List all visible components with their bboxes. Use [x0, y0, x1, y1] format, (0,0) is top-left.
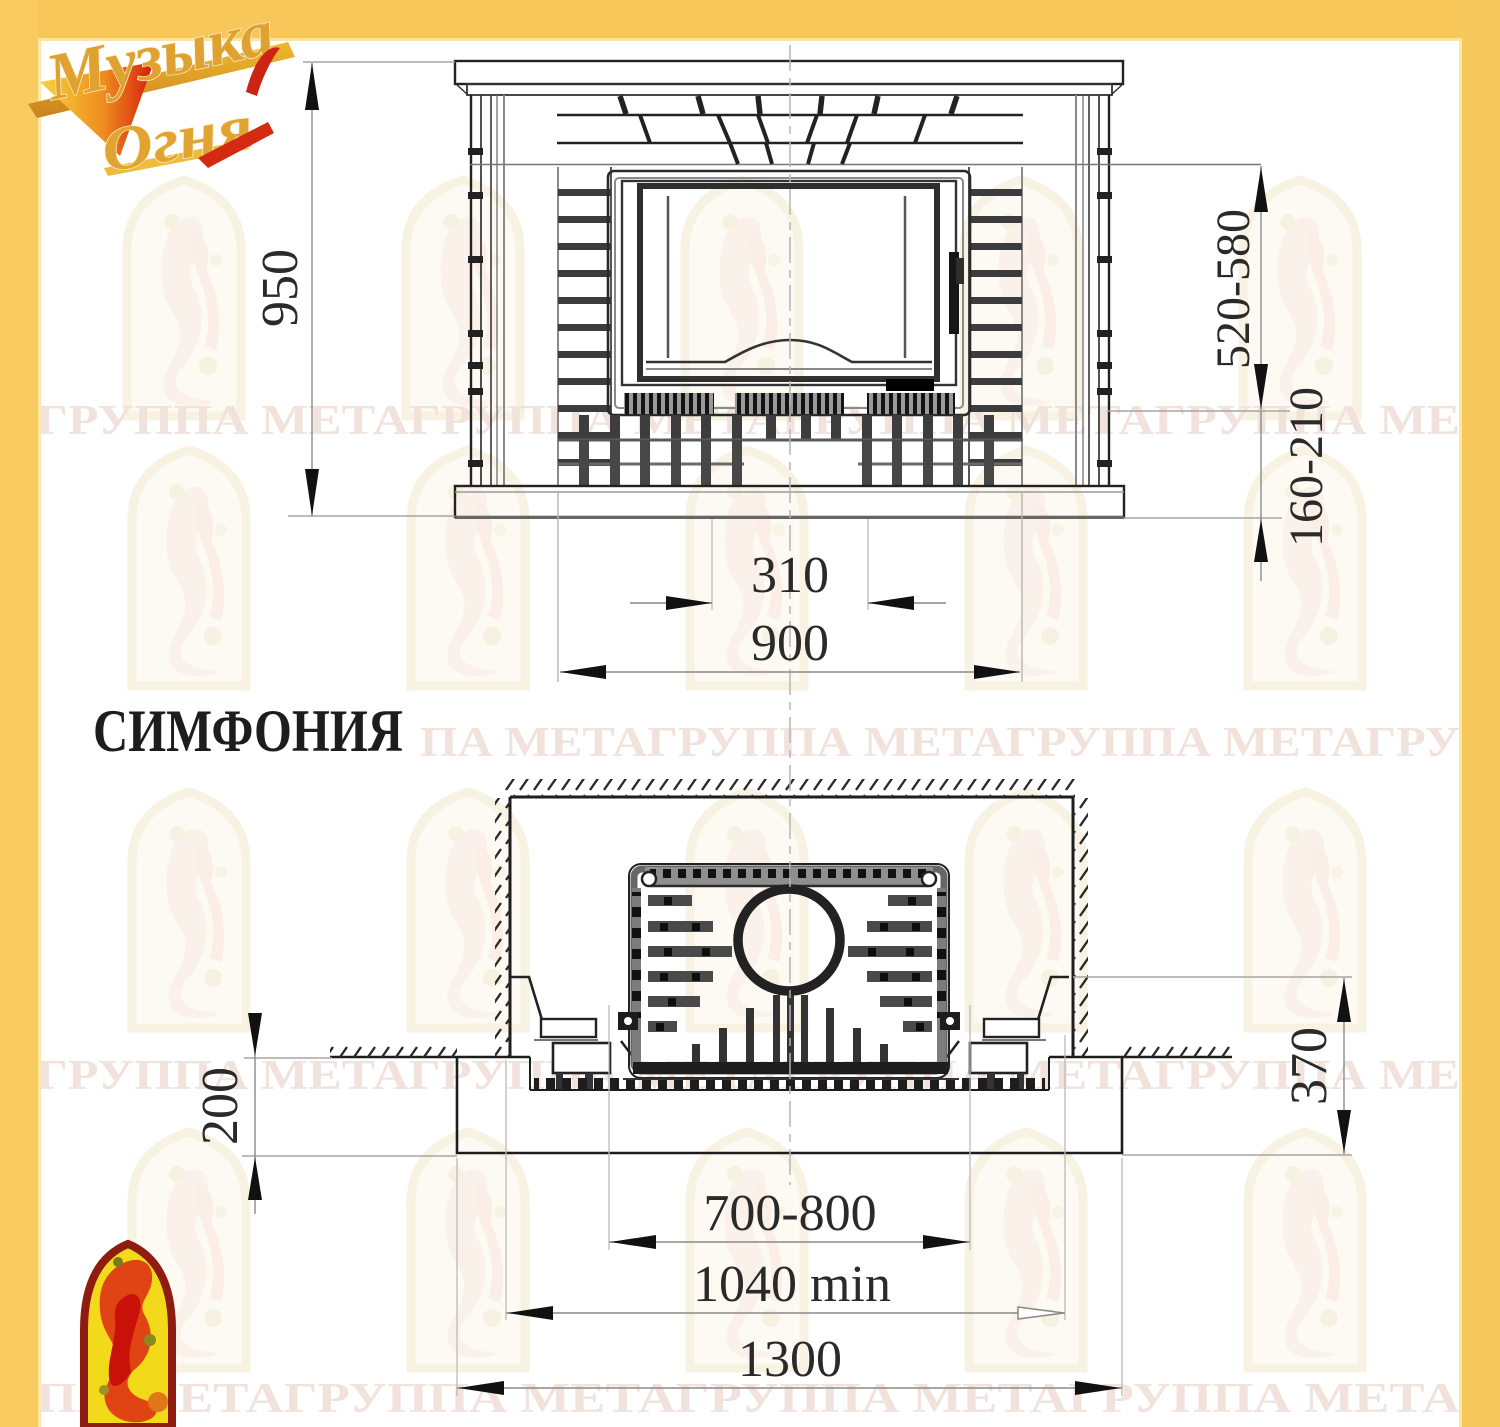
svg-text:900: 900	[751, 615, 829, 672]
svg-text:950: 950	[252, 249, 309, 327]
svg-text:1040 min: 1040 min	[693, 1256, 891, 1313]
svg-text:370: 370	[1281, 1027, 1338, 1105]
svg-text:200: 200	[192, 1067, 249, 1145]
svg-text:СИМФОНИЯ: СИМФОНИЯ	[93, 698, 403, 764]
svg-text:310: 310	[751, 547, 829, 604]
svg-text:520-580: 520-580	[1207, 209, 1260, 369]
svg-text:160-210: 160-210	[1280, 387, 1333, 547]
svg-text:ПА МЕТАГРУППА МЕТАГРУППА МЕТАГ: ПА МЕТАГРУППА МЕТАГРУППА МЕТАГРУ	[420, 720, 1460, 766]
svg-text:700-800: 700-800	[703, 1185, 876, 1242]
svg-text:1300: 1300	[738, 1331, 842, 1388]
